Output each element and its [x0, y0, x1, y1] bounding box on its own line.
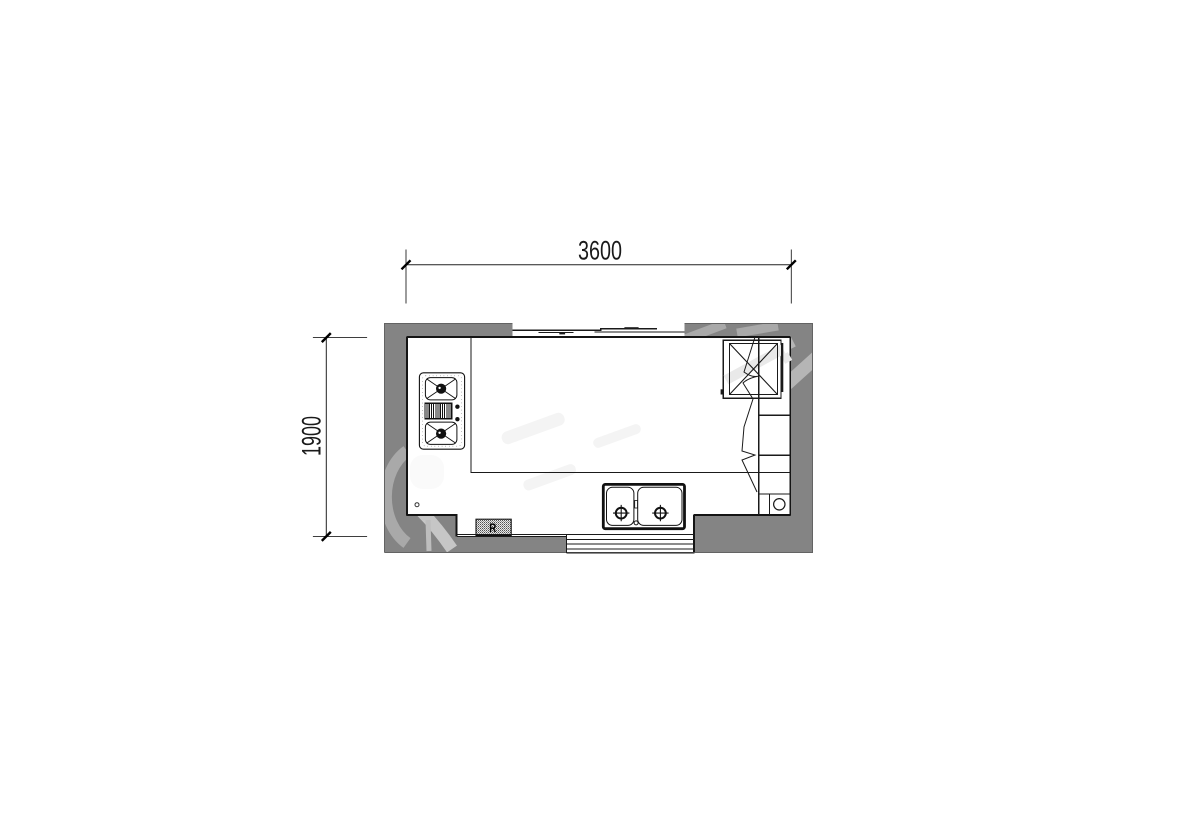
svg-text:3600: 3600	[578, 236, 622, 266]
svg-text:1900: 1900	[297, 416, 327, 456]
svg-text:R: R	[489, 522, 496, 535]
